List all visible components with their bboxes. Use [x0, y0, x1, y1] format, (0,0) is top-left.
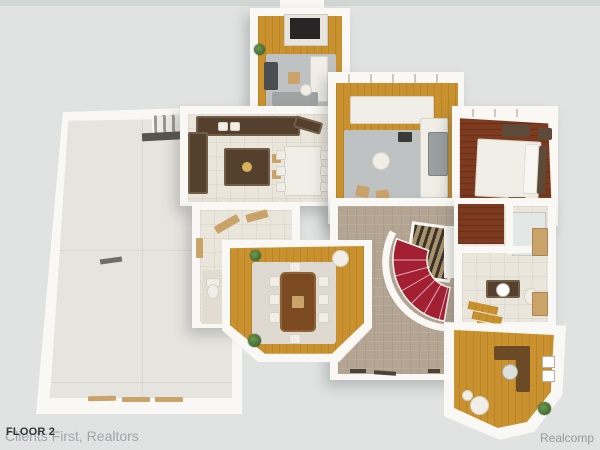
brand-watermark-left: Clients First, Realtors — [5, 428, 139, 444]
potted-plant — [250, 250, 261, 261]
table-centerpiece — [292, 296, 304, 308]
round-table — [470, 396, 489, 415]
floor-label: FLOOR 2 — [6, 426, 55, 438]
desk — [516, 346, 530, 392]
window-row — [338, 74, 456, 83]
potted-plant — [248, 334, 261, 347]
round-coffee-table — [300, 84, 312, 96]
accent-chair — [355, 185, 370, 198]
brand-watermark-right: Realcomp — [540, 431, 594, 445]
round-side-table — [288, 72, 300, 84]
console-cabinet — [428, 132, 448, 176]
dining-chair — [289, 334, 301, 344]
potted-plant — [538, 402, 551, 415]
chair — [276, 182, 286, 192]
breakfast-table — [284, 146, 322, 196]
dresser — [502, 124, 530, 137]
french-door-mark — [350, 369, 366, 373]
sofa — [272, 92, 318, 106]
garage-door-mark — [122, 397, 150, 402]
fireplace-icon — [290, 18, 320, 39]
office-chair — [502, 364, 518, 380]
dining-chair — [269, 294, 280, 305]
dining-chair — [318, 312, 329, 323]
window-row — [462, 109, 522, 117]
chair — [276, 150, 286, 160]
dining-chair — [269, 276, 280, 287]
dining-chair — [269, 312, 280, 323]
chair — [462, 390, 473, 401]
french-door-mark — [428, 369, 440, 373]
dining-chair — [318, 276, 329, 287]
bedroom-hall-floor — [458, 204, 504, 244]
sink-icon — [496, 283, 510, 297]
garage-door-mark — [155, 397, 183, 402]
pedestal — [332, 250, 349, 267]
toilet-icon — [207, 284, 219, 299]
potted-plant — [254, 44, 265, 55]
garage-door-mark — [88, 396, 116, 401]
kitchen-counter-left-run — [188, 132, 208, 194]
tv-icon — [398, 132, 412, 142]
closet-door — [532, 292, 548, 316]
floorplan-render: Clients First, Realtors FLOOR 2 Realcomp — [0, 0, 600, 450]
coffee-table — [372, 152, 390, 170]
cooktop-icon — [218, 122, 228, 131]
door-swing — [196, 238, 203, 258]
bath-partition — [506, 206, 513, 254]
kitchen-counter-top-run — [196, 116, 300, 136]
closet-door — [532, 228, 548, 256]
dining-chair — [318, 294, 329, 305]
window-latch-icon — [542, 370, 555, 382]
dining-chair — [289, 262, 301, 272]
armchair — [264, 62, 278, 90]
chair — [276, 166, 286, 176]
nightstand — [538, 128, 552, 140]
fruit-bowl — [242, 162, 252, 172]
sink-icon — [230, 122, 240, 131]
window-latch-icon — [542, 356, 555, 368]
